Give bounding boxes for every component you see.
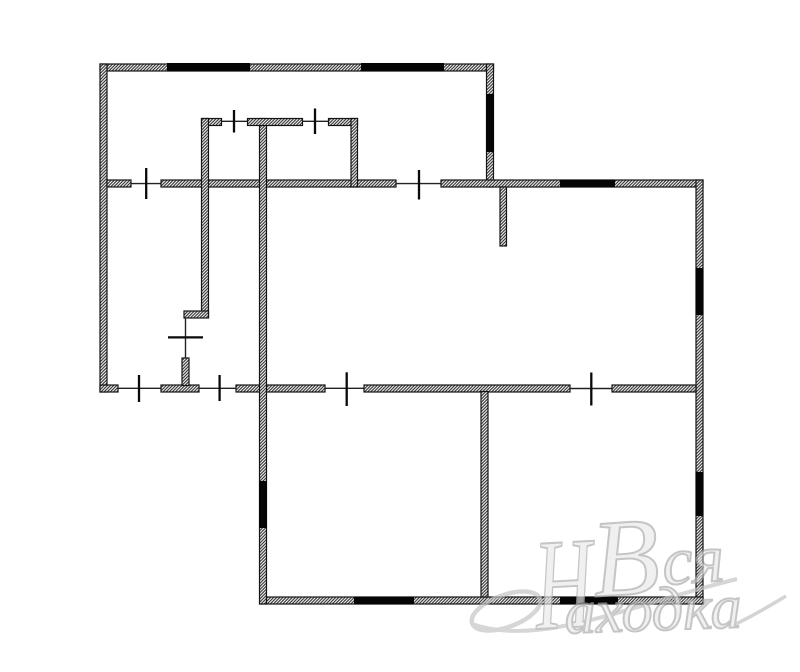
svg-text:аходка: аходка [563,573,742,647]
